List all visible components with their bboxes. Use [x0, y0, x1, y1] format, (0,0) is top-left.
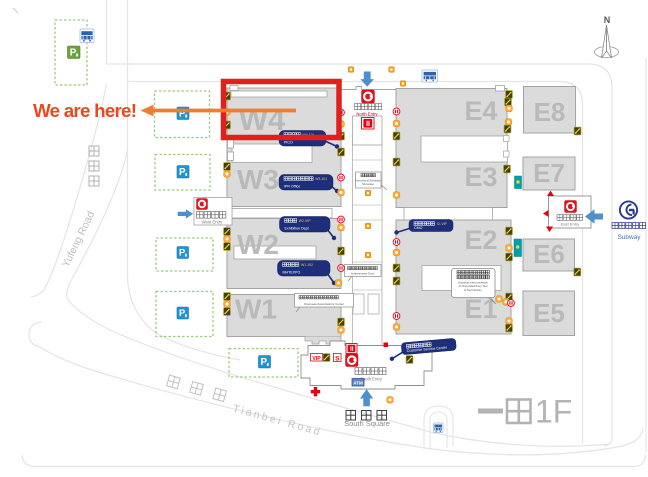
svg-text:S: S	[335, 355, 340, 362]
svg-text:West Entry: West Entry	[202, 220, 223, 225]
svg-text:W2: W2	[237, 229, 279, 260]
svg-text:E6: E6	[533, 239, 565, 269]
svg-text:E1: E1	[464, 294, 497, 324]
svg-text:Overseas Associations Center: Overseas Associations Center	[304, 302, 344, 306]
svg-text:1F: 1F	[535, 394, 572, 430]
svg-text:E3: E3	[464, 162, 497, 192]
svg-text:N: N	[604, 15, 611, 25]
svg-text:CI-VIP: CI-VIP	[437, 222, 448, 226]
svg-text:We are here!: We are here!	[33, 100, 137, 121]
svg-text:P: P	[70, 48, 77, 59]
svg-text:P: P	[179, 247, 185, 258]
svg-text:Exhibition Dept: Exhibition Dept	[285, 227, 309, 231]
svg-text:Showcase: Showcase	[362, 182, 375, 186]
svg-text:W2-VIP: W2-VIP	[299, 219, 311, 223]
svg-text:North Entry: North Entry	[356, 112, 378, 117]
svg-text:W1: W1	[235, 294, 277, 325]
svg-text:W4: W4	[239, 102, 286, 137]
svg-text:E5: E5	[533, 298, 565, 328]
svg-text:PICO: PICO	[284, 141, 293, 145]
svg-text:W3-101: W3-101	[315, 177, 327, 181]
svg-text:Promotional Exhibition: Promotional Exhibition	[355, 178, 381, 182]
svg-text:IPR Office: IPR Office	[284, 185, 300, 189]
svg-text:& Tool Industry: & Tool Industry	[464, 288, 482, 292]
svg-text:Achievements Zone: Achievements Zone	[351, 272, 374, 276]
svg-text:W3: W3	[237, 164, 279, 195]
svg-text:P: P	[179, 307, 185, 318]
svg-text:E7: E7	[533, 158, 565, 188]
svg-text:E4: E4	[464, 96, 497, 126]
svg-text:Industrial Interconnection: Industrial Interconnection	[458, 281, 489, 285]
svg-text:VIP: VIP	[312, 356, 321, 362]
svg-text:Subway: Subway	[617, 234, 641, 241]
svg-text:CMO: CMO	[414, 226, 423, 230]
svg-text:of China Machinery Tool: of China Machinery Tool	[459, 284, 488, 288]
svg-text:P: P	[179, 167, 186, 178]
svg-text:ATM: ATM	[353, 380, 363, 385]
svg-text:East Entry: East Entry	[561, 222, 579, 227]
svg-text:P: P	[261, 357, 268, 368]
svg-text:South Square: South Square	[344, 419, 390, 428]
svg-text:E2: E2	[464, 225, 497, 255]
svg-text:MHTEXPO: MHTEXPO	[283, 271, 301, 275]
svg-text:W1-102: W1-102	[301, 263, 313, 267]
svg-text:E8: E8	[534, 97, 566, 127]
